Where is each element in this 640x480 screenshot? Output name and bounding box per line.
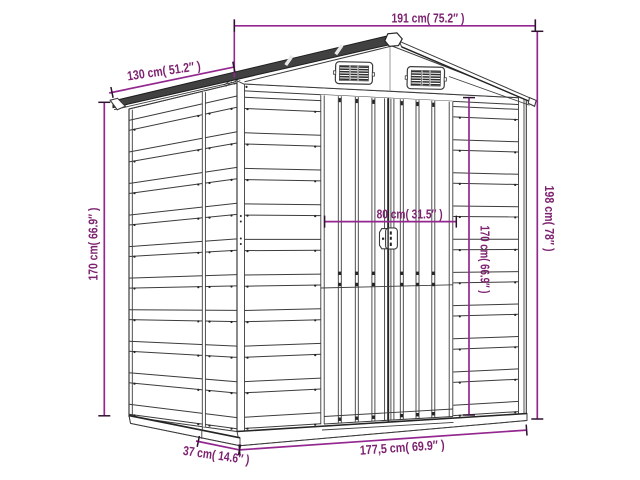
- svg-text:170 cm( 66.9″ ): 170 cm( 66.9″ ): [477, 226, 492, 294]
- svg-text:80 cm( 31.5″ ): 80 cm( 31.5″ ): [377, 206, 443, 221]
- svg-text:191 cm( 75.2″ ): 191 cm( 75.2″ ): [392, 11, 465, 26]
- svg-text:170 cm( 66.9″ ): 170 cm( 66.9″ ): [86, 208, 101, 281]
- svg-text:198 cm( 78″ ): 198 cm( 78″ ): [542, 186, 557, 252]
